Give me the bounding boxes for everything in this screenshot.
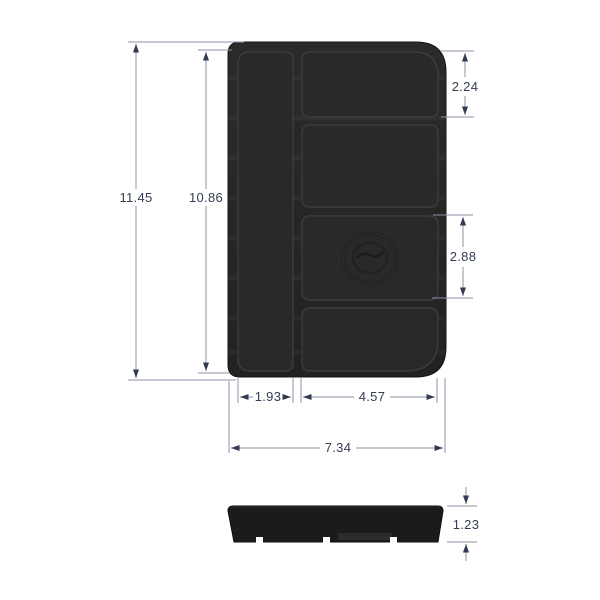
right-pocket-logo: [302, 216, 438, 300]
dim-label-logo-pocket-height: 2.88: [450, 249, 477, 264]
foot-notch: [323, 537, 330, 543]
dim-label-thickness: 1.23: [453, 517, 480, 532]
dim-label-right-pocket-width: 4.57: [359, 389, 386, 404]
side-profile: [228, 506, 443, 542]
technical-drawing-canvas: 11.45 10.86 2.24 2.88: [0, 0, 600, 600]
dim-inner-height: 10.86: [189, 50, 232, 373]
right-pocket-bottom: [302, 308, 438, 371]
dim-overall-height: 11.45: [119, 42, 244, 380]
side-molded-mark: [338, 533, 392, 540]
dim-label-left-pocket-width: 1.93: [255, 389, 282, 404]
dim-label-inner-height: 10.86: [189, 190, 223, 205]
right-pocket-top: [302, 52, 438, 117]
right-pocket-second: [302, 125, 438, 207]
drawing-sheet: 11.45 10.86 2.24 2.88: [0, 0, 600, 600]
foot-notch: [256, 537, 263, 543]
dim-label-overall-width: 7.34: [325, 440, 352, 455]
foot-notch: [390, 537, 397, 543]
dim-thickness: 1.23: [447, 487, 479, 561]
dim-right-pocket-width: 4.57: [301, 378, 437, 404]
dim-left-pocket-width: 1.93: [238, 378, 293, 404]
side-view: [228, 506, 443, 543]
dim-label-overall-height: 11.45: [119, 190, 152, 205]
front-view: [228, 42, 446, 377]
left-pocket: [238, 52, 293, 371]
dim-label-top-pocket-height: 2.24: [452, 79, 479, 94]
